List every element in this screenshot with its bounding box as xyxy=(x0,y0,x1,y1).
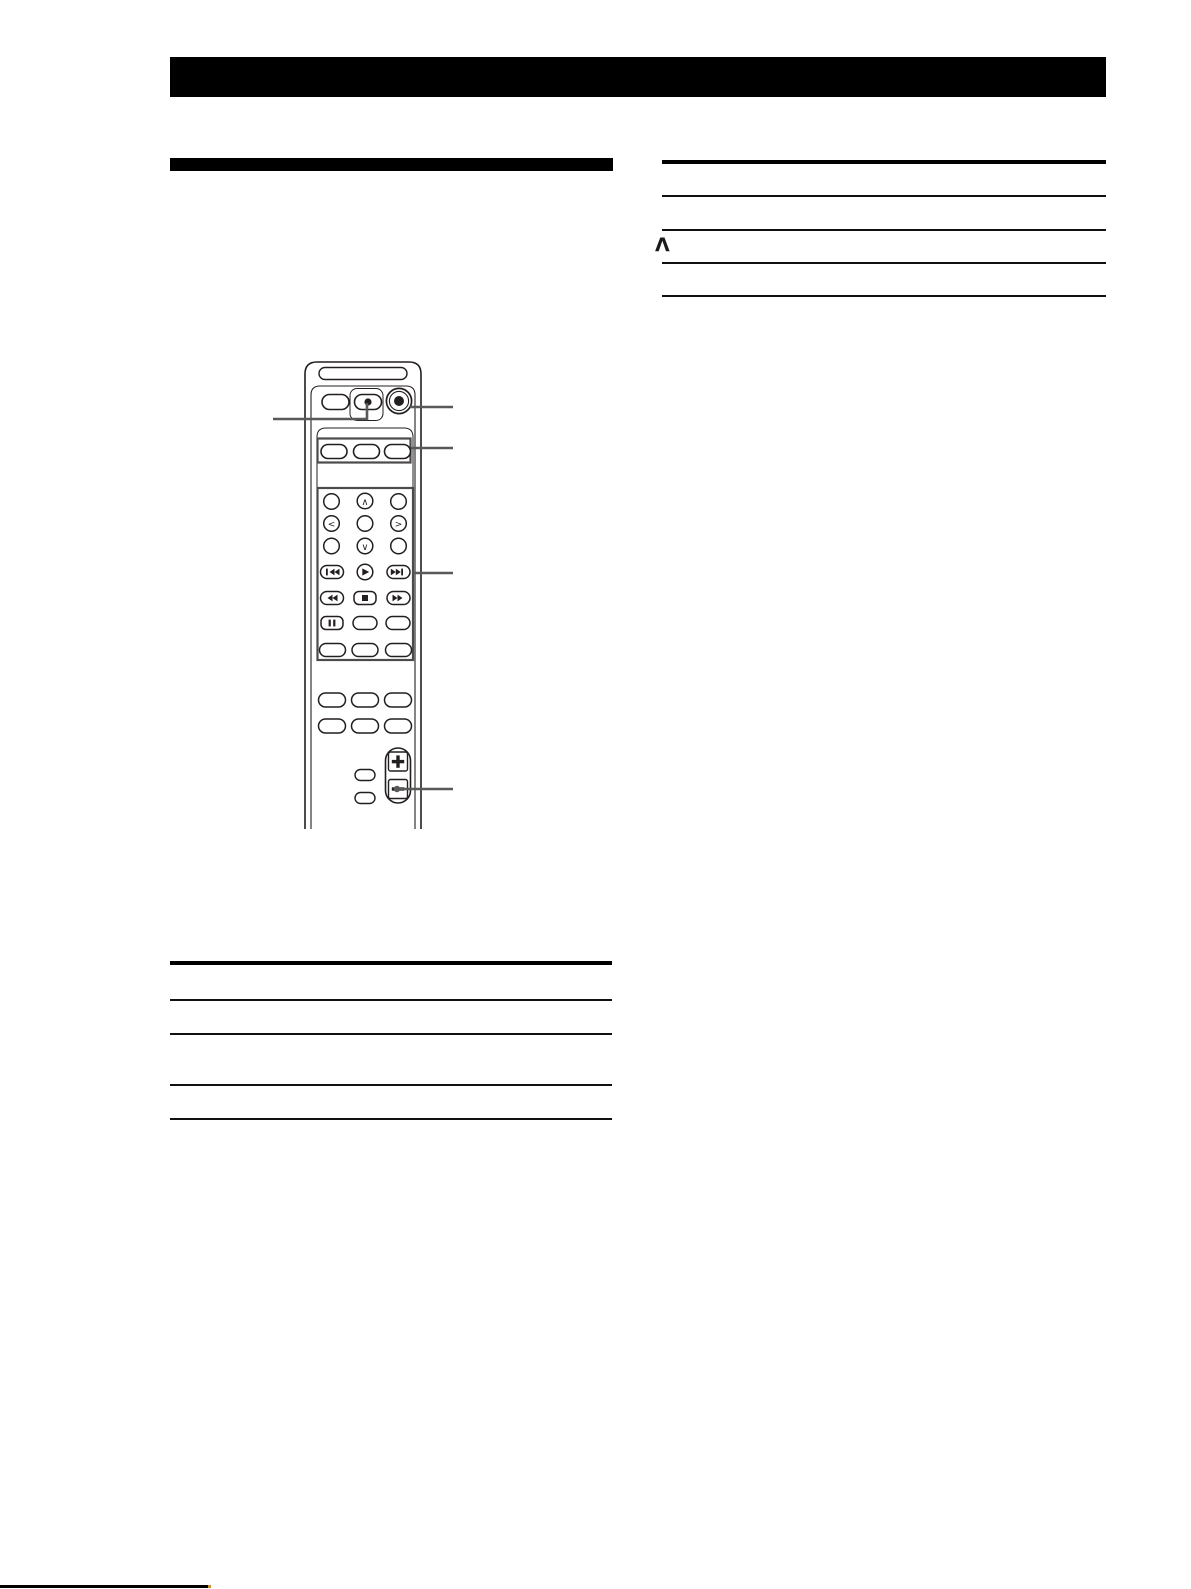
pause-button xyxy=(321,617,343,630)
table-rule xyxy=(170,1118,612,1120)
round-button xyxy=(391,494,407,510)
left-column-table xyxy=(170,961,612,1121)
pill-button xyxy=(353,617,377,630)
small-oval-button xyxy=(355,770,375,781)
ir-emitter-window xyxy=(319,368,407,380)
oval-button xyxy=(352,719,379,733)
chapter-header-bar xyxy=(170,57,1106,97)
oval-button xyxy=(352,693,379,707)
up-caret-icon: ∧ xyxy=(362,497,369,508)
power-button-icon xyxy=(394,396,404,406)
pill-button xyxy=(386,617,410,630)
tuning-caret-label: Λ xyxy=(655,234,670,256)
right-caret-icon: > xyxy=(395,520,403,530)
manual-page: Λ ∧ < > xyxy=(0,0,1191,1589)
table-rule xyxy=(662,229,1106,231)
table-rule xyxy=(662,262,1106,264)
table-rule xyxy=(170,1084,612,1086)
round-button xyxy=(324,538,340,554)
oval-button xyxy=(385,719,412,733)
table-rule xyxy=(662,295,1106,297)
table-rule xyxy=(662,160,1106,164)
pill-button xyxy=(386,644,412,657)
round-button xyxy=(324,494,340,510)
oval-button xyxy=(319,719,346,733)
top-oval-button xyxy=(322,395,349,410)
function-button-2 xyxy=(354,445,380,459)
table-rule xyxy=(170,1033,612,1035)
table-rule xyxy=(170,999,612,1001)
oval-button xyxy=(319,693,346,707)
oval-button xyxy=(385,693,412,707)
down-caret-icon: ∨ xyxy=(362,542,369,553)
remote-illustration: ∧ < > ∨ xyxy=(260,355,460,835)
stop-icon xyxy=(362,595,368,601)
table-rule xyxy=(170,961,612,965)
right-column-table xyxy=(662,160,1106,300)
pill-button xyxy=(352,644,378,657)
page-edge-mark xyxy=(0,1585,210,1588)
table-rule xyxy=(662,195,1106,197)
left-caret-icon: < xyxy=(328,520,336,530)
small-oval-button xyxy=(355,793,375,804)
round-button xyxy=(391,538,407,554)
registration-dot xyxy=(208,1585,211,1588)
round-button xyxy=(357,516,373,532)
function-button-3 xyxy=(385,445,411,459)
section-title-bar xyxy=(170,158,613,171)
function-button-1 xyxy=(321,445,347,459)
pill-button xyxy=(320,644,346,657)
